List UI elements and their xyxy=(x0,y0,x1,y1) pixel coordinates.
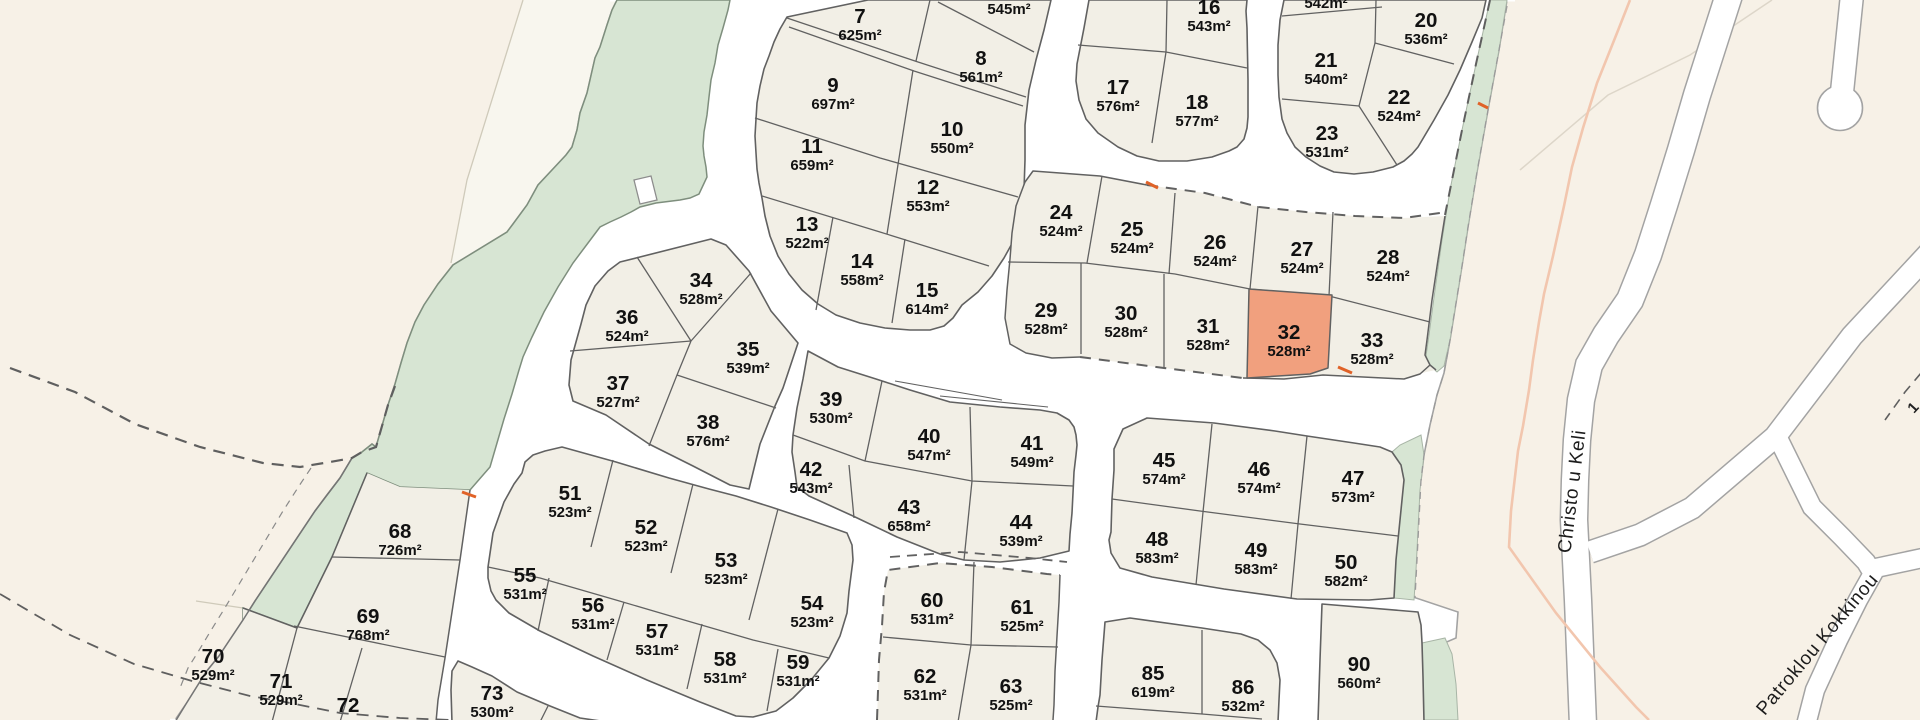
svg-text:52: 52 xyxy=(635,516,658,539)
svg-text:13: 13 xyxy=(796,213,819,236)
svg-text:11: 11 xyxy=(801,135,823,158)
svg-text:25: 25 xyxy=(1121,218,1144,241)
svg-text:619m²: 619m² xyxy=(1131,684,1174,701)
svg-text:71: 71 xyxy=(270,670,293,693)
svg-text:583m²: 583m² xyxy=(1135,550,1178,567)
svg-text:21: 21 xyxy=(1315,49,1338,72)
svg-text:539m²: 539m² xyxy=(999,533,1042,550)
svg-text:531m²: 531m² xyxy=(910,611,953,628)
svg-text:524m²: 524m² xyxy=(1366,268,1409,285)
svg-text:23: 23 xyxy=(1316,122,1339,145)
svg-text:61: 61 xyxy=(1011,596,1034,619)
svg-text:523m²: 523m² xyxy=(790,614,833,631)
svg-text:33: 33 xyxy=(1361,329,1384,352)
svg-text:524m²: 524m² xyxy=(1039,223,1082,240)
svg-text:73: 73 xyxy=(481,682,504,705)
svg-text:70: 70 xyxy=(202,645,225,668)
svg-text:658m²: 658m² xyxy=(887,518,930,535)
svg-text:531m²: 531m² xyxy=(776,673,819,690)
svg-text:58: 58 xyxy=(714,648,737,671)
svg-text:27: 27 xyxy=(1291,238,1314,261)
svg-text:573m²: 573m² xyxy=(1331,489,1374,506)
svg-text:72: 72 xyxy=(337,694,360,717)
svg-text:45: 45 xyxy=(1153,449,1176,472)
svg-text:39: 39 xyxy=(820,388,843,411)
svg-text:542m²: 542m² xyxy=(1304,0,1347,12)
svg-text:531m²: 531m² xyxy=(703,670,746,687)
svg-text:16: 16 xyxy=(1198,0,1221,19)
svg-text:34: 34 xyxy=(690,269,713,292)
svg-text:558m²: 558m² xyxy=(840,272,883,289)
svg-text:549m²: 549m² xyxy=(1010,454,1053,471)
svg-text:9: 9 xyxy=(827,74,838,97)
svg-text:529m²: 529m² xyxy=(191,667,234,684)
svg-text:536m²: 536m² xyxy=(1404,31,1447,48)
svg-text:60: 60 xyxy=(921,589,944,612)
svg-text:46: 46 xyxy=(1248,458,1271,481)
svg-text:17: 17 xyxy=(1107,76,1130,99)
svg-text:561m²: 561m² xyxy=(959,69,1002,86)
svg-text:531m²: 531m² xyxy=(903,687,946,704)
svg-text:48: 48 xyxy=(1146,528,1169,551)
svg-text:57: 57 xyxy=(646,620,669,643)
svg-text:545m²: 545m² xyxy=(987,1,1030,18)
svg-text:726m²: 726m² xyxy=(378,542,421,559)
svg-text:550m²: 550m² xyxy=(930,140,973,157)
svg-text:47: 47 xyxy=(1342,467,1365,490)
svg-text:63: 63 xyxy=(1000,675,1023,698)
svg-text:525m²: 525m² xyxy=(1000,618,1043,635)
svg-text:10: 10 xyxy=(941,118,964,141)
svg-text:18: 18 xyxy=(1186,91,1209,114)
svg-text:8: 8 xyxy=(975,47,986,70)
svg-text:85: 85 xyxy=(1142,662,1165,685)
svg-text:15: 15 xyxy=(916,279,939,302)
svg-text:577m²: 577m² xyxy=(1175,113,1218,130)
svg-text:43: 43 xyxy=(898,496,921,519)
svg-text:55: 55 xyxy=(514,564,537,587)
svg-text:528m²: 528m² xyxy=(1350,351,1393,368)
svg-text:68: 68 xyxy=(389,520,412,543)
svg-text:614m²: 614m² xyxy=(905,301,948,318)
svg-text:69: 69 xyxy=(357,605,380,628)
svg-text:522m²: 522m² xyxy=(785,235,828,252)
svg-text:38: 38 xyxy=(697,411,720,434)
svg-text:583m²: 583m² xyxy=(1234,561,1277,578)
svg-text:532m²: 532m² xyxy=(1221,698,1264,715)
svg-text:531m²: 531m² xyxy=(635,642,678,659)
svg-text:531m²: 531m² xyxy=(571,616,614,633)
svg-text:36: 36 xyxy=(616,306,639,329)
svg-text:28: 28 xyxy=(1377,246,1400,269)
svg-text:35: 35 xyxy=(737,338,760,361)
svg-text:576m²: 576m² xyxy=(686,433,729,450)
svg-text:540m²: 540m² xyxy=(1304,71,1347,88)
svg-text:574m²: 574m² xyxy=(1142,471,1185,488)
svg-text:62: 62 xyxy=(914,665,937,688)
svg-text:530m²: 530m² xyxy=(809,410,852,427)
svg-text:529m²: 529m² xyxy=(259,692,302,709)
svg-text:56: 56 xyxy=(582,594,605,617)
svg-text:524m²: 524m² xyxy=(1280,260,1323,277)
svg-text:539m²: 539m² xyxy=(726,360,769,377)
svg-text:22: 22 xyxy=(1388,86,1411,109)
svg-text:625m²: 625m² xyxy=(838,27,881,44)
svg-text:523m²: 523m² xyxy=(624,538,667,555)
svg-text:528m²: 528m² xyxy=(1186,337,1229,354)
svg-text:768m²: 768m² xyxy=(346,627,389,644)
svg-text:7: 7 xyxy=(854,5,865,28)
svg-text:530m²: 530m² xyxy=(470,704,513,720)
svg-text:697m²: 697m² xyxy=(811,96,854,113)
svg-text:31: 31 xyxy=(1197,315,1220,338)
svg-text:86: 86 xyxy=(1232,676,1255,699)
svg-text:528m²: 528m² xyxy=(679,291,722,308)
svg-text:531m²: 531m² xyxy=(1305,144,1348,161)
svg-text:24: 24 xyxy=(1050,201,1073,224)
svg-text:524m²: 524m² xyxy=(1377,108,1420,125)
svg-text:582m²: 582m² xyxy=(1324,573,1367,590)
svg-text:553m²: 553m² xyxy=(906,198,949,215)
svg-text:40: 40 xyxy=(918,425,941,448)
svg-text:51: 51 xyxy=(559,482,582,505)
svg-text:14: 14 xyxy=(851,250,874,273)
svg-text:528m²: 528m² xyxy=(1104,324,1147,341)
svg-text:547m²: 547m² xyxy=(907,447,950,464)
svg-text:524m²: 524m² xyxy=(605,328,648,345)
svg-text:543m²: 543m² xyxy=(1187,18,1230,35)
svg-text:523m²: 523m² xyxy=(548,504,591,521)
svg-text:30: 30 xyxy=(1115,302,1138,325)
svg-text:29: 29 xyxy=(1035,299,1058,322)
svg-text:524m²: 524m² xyxy=(1193,253,1236,270)
svg-text:32: 32 xyxy=(1278,321,1301,344)
svg-text:528m²: 528m² xyxy=(1024,321,1067,338)
svg-text:527m²: 527m² xyxy=(596,394,639,411)
svg-text:26: 26 xyxy=(1204,231,1227,254)
svg-text:53: 53 xyxy=(715,549,738,572)
svg-text:574m²: 574m² xyxy=(1237,480,1280,497)
svg-text:54: 54 xyxy=(801,592,824,615)
svg-text:576m²: 576m² xyxy=(1096,98,1139,115)
svg-text:531m²: 531m² xyxy=(503,586,546,603)
svg-text:90: 90 xyxy=(1348,653,1371,676)
svg-text:44: 44 xyxy=(1010,511,1033,534)
svg-text:37: 37 xyxy=(607,372,630,395)
svg-text:41: 41 xyxy=(1021,432,1044,455)
svg-text:50: 50 xyxy=(1335,551,1358,574)
svg-text:42: 42 xyxy=(800,458,823,481)
svg-text:525m²: 525m² xyxy=(989,697,1032,714)
svg-text:528m²: 528m² xyxy=(1267,343,1310,360)
svg-text:659m²: 659m² xyxy=(790,157,833,174)
svg-text:524m²: 524m² xyxy=(1110,240,1153,257)
svg-text:560m²: 560m² xyxy=(1337,675,1380,692)
svg-text:543m²: 543m² xyxy=(789,480,832,497)
svg-text:20: 20 xyxy=(1415,9,1438,32)
svg-text:12: 12 xyxy=(917,176,940,199)
svg-text:523m²: 523m² xyxy=(704,571,747,588)
svg-text:59: 59 xyxy=(787,651,810,674)
svg-text:49: 49 xyxy=(1245,539,1268,562)
